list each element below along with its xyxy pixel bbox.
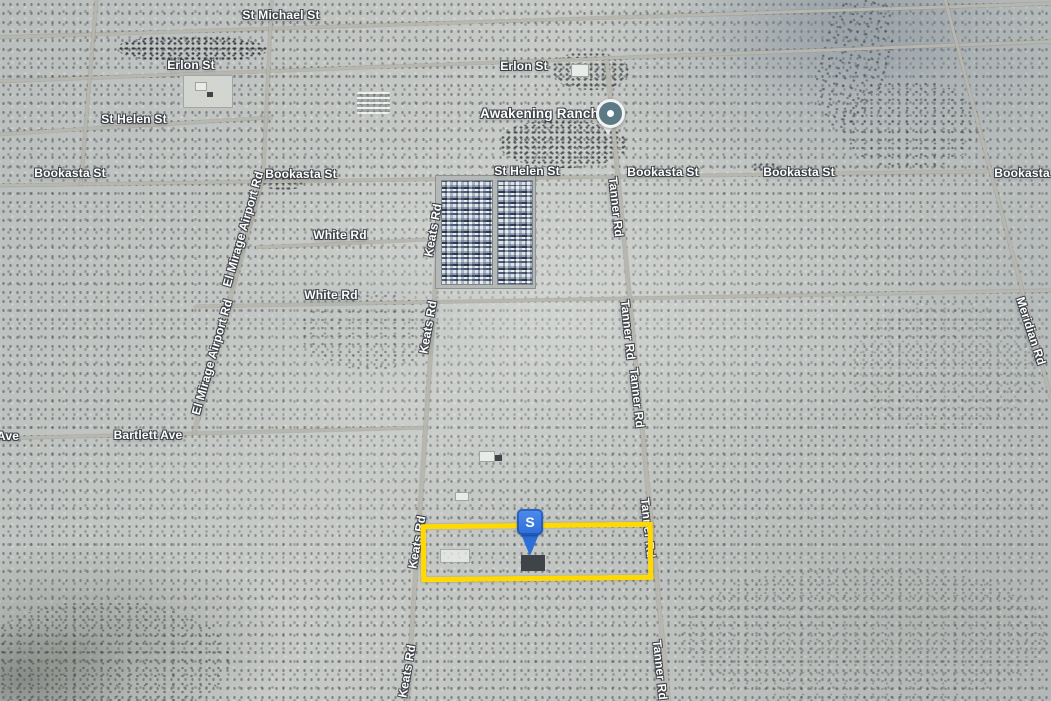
street-label-ave-partial: Ave	[0, 429, 19, 443]
street-label-bartlett-ave: Bartlett Ave	[114, 428, 183, 442]
street-label-tanner-rd-1: Tanner Rd	[606, 176, 626, 237]
street-label-white-rd-n: White Rd	[313, 228, 367, 242]
small-building-south-1	[479, 451, 495, 462]
street-label-tanner-rd-2: Tanner Rd	[618, 299, 638, 360]
poi-awakening-ranch-label: Awakening Ranch	[480, 106, 599, 121]
trailer-rows-left	[441, 180, 493, 285]
property-marker-head: S	[517, 509, 543, 535]
street-label-st-helen-st-w: St Helen St	[101, 112, 167, 126]
satellite-map[interactable]: St Michael StErlon StErlon StSt Helen St…	[0, 0, 1051, 701]
poi-pin-dot	[607, 110, 614, 117]
street-label-bookasta-st-2: Bookasta St	[265, 167, 337, 181]
street-label-erlon-st-e: Erlon St	[500, 59, 548, 73]
small-building	[195, 82, 207, 91]
street-label-meridian-rd: Meridian Rd	[1013, 295, 1048, 367]
street-label-st-helen-st-c: St Helen St	[494, 164, 560, 178]
street-label-bookasta-st-4: Bookasta St	[763, 165, 835, 179]
property-marker-pin[interactable]: S	[517, 509, 543, 557]
street-label-el-mirage-airport-rd-s: El Mirage Airport Rd	[189, 298, 235, 417]
street-label-bookasta-st-5: Bookasta St	[994, 166, 1051, 180]
street-label-white-rd-s: White Rd	[304, 288, 358, 302]
small-structure-south	[495, 455, 502, 461]
poi-pin-icon[interactable]	[596, 99, 625, 128]
street-label-tanner-rd-3: Tanner Rd	[627, 367, 647, 428]
trailer-park	[435, 175, 536, 289]
street-label-tanner-rd-5: Tanner Rd	[650, 639, 670, 700]
street-label-el-mirage-airport-rd-n: El Mirage Airport Rd	[220, 170, 266, 289]
street-label-keats-rd-4: Keats Rd	[395, 643, 418, 698]
small-structure	[207, 92, 213, 97]
white-building-erlon	[571, 64, 589, 77]
street-label-keats-rd-2: Keats Rd	[416, 299, 439, 354]
street-label-bookasta-st-3: Bookasta St	[627, 165, 699, 179]
fenced-plot	[183, 75, 233, 108]
small-building-south-2	[455, 492, 469, 501]
street-label-erlon-st-w: Erlon St	[167, 58, 215, 72]
property-marker-letter: S	[525, 514, 534, 530]
property-marker-tail	[521, 534, 539, 556]
trailer-rows-right	[497, 180, 533, 285]
street-label-bookasta-st-1: Bookasta St	[34, 166, 106, 180]
container-rows	[357, 92, 390, 114]
street-label-st-michael-st: St Michael St	[242, 8, 319, 22]
